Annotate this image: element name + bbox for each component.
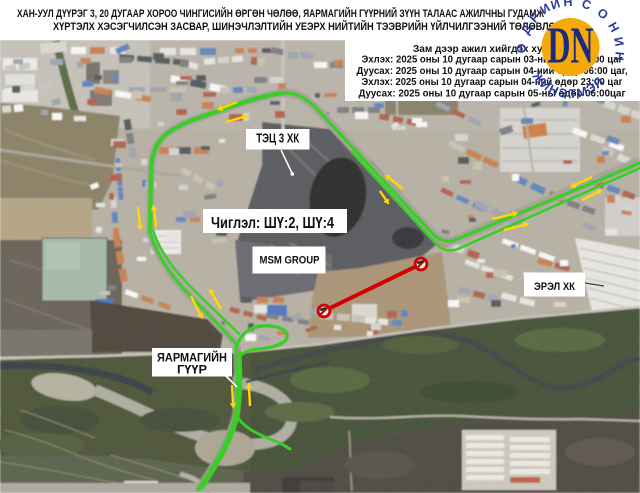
svg-text:ХҮРТЭЛХ ХЭСЭГЧИЛСЭН ЗАСВАР, ШИ: ХҮРТЭЛХ ХЭСЭГЧИЛСЭН ЗАСВАР, ШИНЭЧЛЭЛТИЙН… — [53, 20, 581, 33]
svg-text:Ө: Ө — [514, 43, 529, 54]
svg-text:ГҮҮР: ГҮҮР — [177, 363, 207, 377]
svg-text:Н: Н — [563, 0, 573, 9]
svg-text:ЭРЭЛ ХК: ЭРЭЛ ХК — [534, 281, 575, 293]
svg-text:DN: DN — [548, 18, 594, 75]
svg-text:ТЭЦ 3 ХК: ТЭЦ 3 ХК — [256, 132, 299, 146]
svg-text:Чиглэл: ШҮ:2, ШҮ:4: Чиглэл: ШҮ:2, ШҮ:4 — [211, 215, 334, 232]
svg-text:ХАН-УУЛ ДҮҮРЭГ 3, 20 ДУГААР ХО: ХАН-УУЛ ДҮҮРЭГ 3, 20 ДУГААР ХОРОО ЧИНГИС… — [17, 7, 544, 20]
svg-text:Н: Н — [612, 51, 627, 61]
svg-text:MSM GROUP: MSM GROUP — [260, 254, 320, 266]
